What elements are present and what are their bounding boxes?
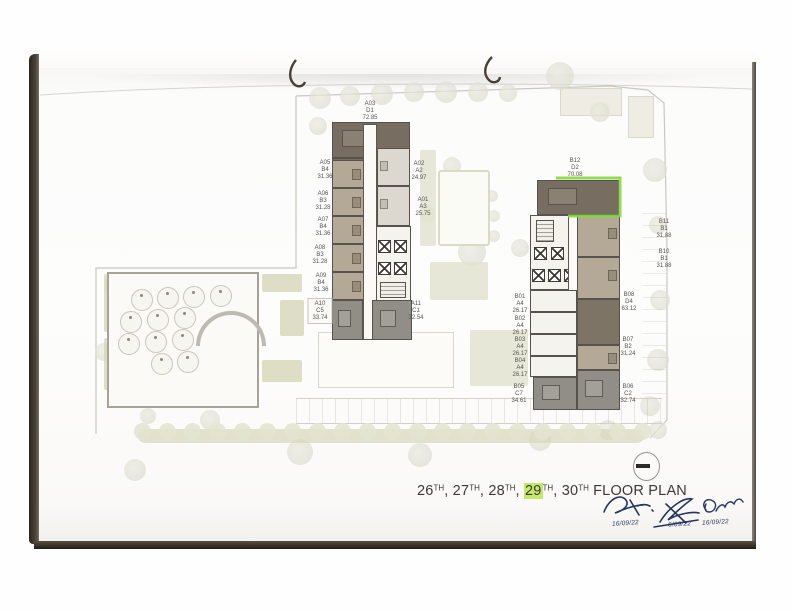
photographed-floor-plan-sheet: A01 A3 25.75A02 A2 24.97A03 D1 72.85A05 …	[0, 0, 792, 612]
signature-3	[704, 499, 743, 512]
page-bottom-edge	[34, 541, 756, 549]
signature-2	[660, 499, 699, 522]
signature-strokes	[0, 0, 792, 612]
page-left-edge	[29, 54, 39, 544]
page-right-edge	[752, 62, 756, 543]
signature-1	[630, 500, 653, 515]
